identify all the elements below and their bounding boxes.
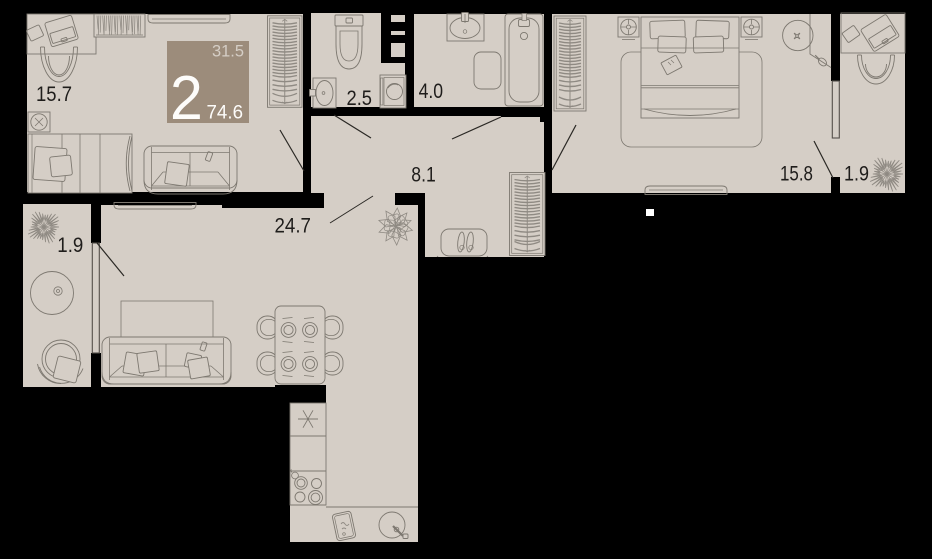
- svg-text:24.7: 24.7: [275, 214, 312, 238]
- svg-text:4.0: 4.0: [419, 79, 444, 103]
- svg-text:8.1: 8.1: [411, 163, 436, 187]
- svg-text:2.5: 2.5: [347, 86, 373, 110]
- svg-text:1.9: 1.9: [844, 162, 869, 186]
- svg-text:74.6: 74.6: [207, 103, 244, 124]
- svg-text:15.7: 15.7: [36, 82, 72, 106]
- svg-text:2: 2: [170, 64, 203, 133]
- svg-text:15.8: 15.8: [780, 162, 813, 186]
- svg-text:31.5: 31.5: [212, 42, 244, 61]
- svg-text:1.9: 1.9: [57, 233, 83, 257]
